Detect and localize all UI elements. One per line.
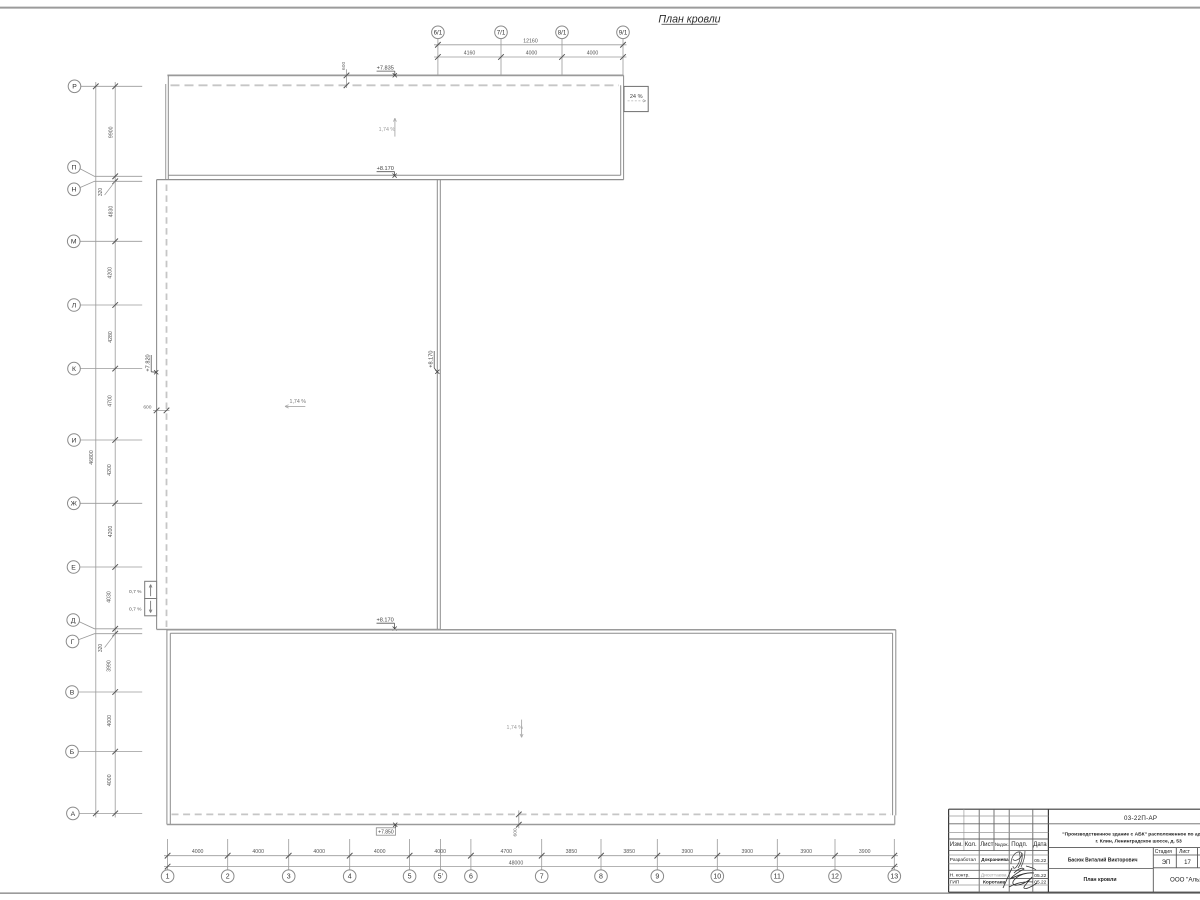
svg-text:600: 600 — [341, 62, 347, 70]
svg-text:П: П — [72, 164, 77, 171]
svg-text:1: 1 — [166, 874, 170, 881]
svg-text:4030: 4030 — [107, 591, 113, 603]
svg-text:7: 7 — [540, 874, 544, 881]
svg-text:3900: 3900 — [859, 849, 871, 855]
svg-text:6/1: 6/1 — [434, 30, 443, 37]
svg-text:5’: 5’ — [438, 874, 444, 881]
svg-text:3850: 3850 — [623, 849, 635, 855]
svg-text:6: 6 — [469, 874, 473, 881]
svg-text:46800: 46800 — [89, 450, 95, 465]
svg-text:+7.850: +7.850 — [378, 830, 394, 836]
svg-text:2: 2 — [226, 874, 230, 881]
svg-text:№док.: №док. — [995, 842, 1009, 848]
svg-text:24 %: 24 % — [630, 94, 643, 100]
svg-text:9/1: 9/1 — [619, 30, 628, 37]
svg-text:4160: 4160 — [464, 51, 476, 57]
svg-text:4200: 4200 — [108, 267, 114, 279]
svg-text:4000: 4000 — [587, 51, 599, 57]
svg-text:В: В — [70, 689, 75, 696]
svg-text:ГИП: ГИП — [950, 880, 960, 886]
svg-text:Подп.: Подп. — [1011, 841, 1027, 848]
svg-text:4700: 4700 — [107, 395, 113, 407]
svg-text:4200: 4200 — [107, 464, 113, 476]
svg-text:03-22П-АР: 03-22П-АР — [1124, 815, 1157, 822]
svg-text:05.22: 05.22 — [1034, 858, 1046, 864]
svg-text:Изм.: Изм. — [950, 841, 963, 848]
svg-text:Дисеттаева: Дисеттаева — [981, 873, 1007, 879]
svg-text:4000: 4000 — [313, 849, 325, 855]
svg-text:4000: 4000 — [107, 715, 113, 727]
svg-text:1,74 %: 1,74 % — [290, 399, 307, 405]
svg-text:9: 9 — [655, 874, 659, 881]
svg-text:Н: Н — [72, 187, 77, 194]
svg-text:Лист: Лист — [980, 841, 993, 848]
svg-text:600: 600 — [513, 828, 519, 836]
svg-text:4000: 4000 — [107, 774, 113, 786]
svg-text:4000: 4000 — [252, 849, 264, 855]
svg-text:4280: 4280 — [108, 331, 114, 343]
svg-text:600: 600 — [143, 405, 151, 411]
svg-text:5: 5 — [408, 874, 412, 881]
svg-text:7/1: 7/1 — [497, 30, 506, 37]
svg-text:4000: 4000 — [192, 849, 204, 855]
svg-text:4000: 4000 — [434, 849, 446, 855]
svg-text:4830: 4830 — [108, 206, 114, 218]
svg-text:г. Клин, Ленинградское шоссе,: г. Клин, Ленинградское шоссе, д. 53 — [1095, 838, 1181, 844]
svg-text:Коротаев: Коротаев — [983, 880, 1005, 886]
svg-text:Дата: Дата — [1033, 841, 1047, 848]
svg-text:3: 3 — [287, 874, 291, 881]
svg-text:4000: 4000 — [374, 849, 386, 855]
svg-text:4: 4 — [348, 874, 352, 881]
svg-text:К: К — [72, 366, 76, 373]
svg-text:Басюк Виталий Викторович: Басюк Виталий Викторович — [1068, 856, 1138, 863]
svg-text:320: 320 — [98, 644, 104, 653]
svg-text:А: А — [71, 811, 76, 818]
svg-text:10: 10 — [713, 874, 721, 881]
svg-text:8: 8 — [599, 874, 603, 881]
svg-text:Г: Г — [71, 639, 75, 646]
svg-text:М: М — [71, 239, 77, 246]
svg-text:05.22: 05.22 — [1034, 873, 1046, 879]
svg-text:1,74 %: 1,74 % — [379, 127, 396, 133]
svg-text:4000: 4000 — [526, 51, 538, 57]
svg-text:План кровли: План кровли — [1083, 877, 1116, 883]
svg-text:4700: 4700 — [501, 849, 513, 855]
svg-text:17: 17 — [1184, 860, 1191, 866]
svg-text:48000: 48000 — [509, 861, 524, 867]
svg-text:4200: 4200 — [108, 526, 114, 538]
svg-text:3990: 3990 — [106, 660, 112, 672]
svg-text:ООО "Альянс": ООО "Альянс" — [1170, 877, 1200, 884]
svg-text:13: 13 — [890, 874, 898, 881]
svg-text:3850: 3850 — [566, 849, 578, 855]
svg-text:Б: Б — [70, 749, 75, 756]
svg-text:Л: Л — [72, 302, 76, 309]
svg-text:12160: 12160 — [523, 39, 538, 45]
svg-text:ЭП: ЭП — [1162, 860, 1171, 866]
svg-text:3900: 3900 — [742, 849, 754, 855]
svg-text:Стадия: Стадия — [1155, 849, 1172, 855]
svg-text:0,7 %: 0,7 % — [129, 589, 142, 595]
svg-text:Ж: Ж — [71, 501, 78, 508]
svg-text:Докраниева: Докраниева — [981, 857, 1009, 862]
svg-text:План кровли: План кровли — [658, 13, 720, 25]
svg-text:8/1: 8/1 — [558, 30, 567, 37]
svg-text:320: 320 — [98, 188, 104, 197]
svg-text:3900: 3900 — [682, 849, 694, 855]
svg-text:12: 12 — [831, 874, 839, 881]
svg-text:И: И — [72, 437, 77, 444]
svg-text:Н. контр.: Н. контр. — [950, 873, 970, 879]
svg-text:+8.170: +8.170 — [429, 351, 435, 368]
svg-text:05.22: 05.22 — [1034, 880, 1046, 886]
svg-text:Е: Е — [71, 564, 76, 571]
svg-text:Лист: Лист — [1179, 849, 1191, 855]
svg-text:"Производственное здание с АБК: "Производственное здание с АБК" располож… — [1062, 832, 1200, 838]
svg-text:Кол.: Кол. — [965, 841, 977, 848]
svg-text:3900: 3900 — [800, 849, 812, 855]
svg-text:1,74 %: 1,74 % — [507, 725, 524, 731]
svg-text:0,7 %: 0,7 % — [129, 606, 142, 612]
svg-text:+7.820: +7.820 — [146, 354, 152, 371]
svg-text:Д: Д — [71, 617, 76, 624]
svg-text:9900: 9900 — [108, 126, 114, 138]
svg-text:11: 11 — [774, 874, 781, 881]
svg-text:Р: Р — [72, 84, 77, 91]
svg-text:Разработал: Разработал — [950, 857, 976, 863]
